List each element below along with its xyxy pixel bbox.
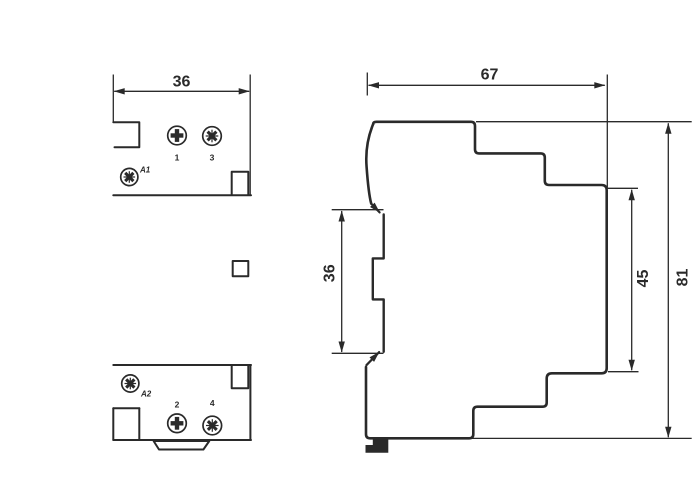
terminal-screw-2 — [168, 414, 187, 433]
front-upper-right-tab — [232, 172, 249, 195]
coil-label-a2: A2 — [140, 390, 152, 399]
side-height-label: 81 — [675, 269, 692, 287]
front-bottom-left-notch — [113, 408, 139, 440]
terminal-screw-1 — [168, 126, 187, 145]
terminal-label-4: 4 — [210, 398, 215, 408]
front-width-label: 36 — [173, 74, 191, 91]
side-step-dimension: 45 — [608, 188, 652, 371]
front-rail-clip — [154, 441, 210, 450]
terminal-label-3: 3 — [210, 153, 215, 163]
side-step-label: 45 — [635, 270, 652, 288]
terminal-label-2: 2 — [175, 400, 180, 410]
side-rail-dimension: 36 — [322, 210, 384, 354]
rail-notch-pointer-bottom — [366, 352, 379, 365]
terminal-screw-3 — [203, 127, 222, 146]
din-rail-channel — [373, 215, 384, 352]
side-height-dimension: 81 — [471, 122, 692, 439]
side-housing-outline — [366, 122, 607, 439]
side-depth-dimension: 67 — [367, 67, 607, 190]
front-top-left-notch — [113, 122, 139, 147]
din-rail-clip-foot — [366, 439, 389, 453]
coil-screw-a2 — [122, 375, 139, 392]
side-depth-label: 67 — [481, 67, 499, 84]
rail-notch-pointer-top — [371, 204, 379, 213]
side-view: 67 36 45 81 — [322, 67, 692, 453]
terminal-label-1: 1 — [175, 153, 180, 163]
front-lower-right-tab — [232, 365, 249, 388]
terminal-screw-4 — [203, 416, 222, 435]
coil-screw-a1 — [121, 168, 138, 185]
side-front-face-curve — [366, 124, 373, 204]
dimension-drawing: 36 1 3 A1 — [0, 0, 700, 500]
side-rail-label: 36 — [322, 264, 339, 282]
front-view: 36 1 3 A1 — [113, 74, 251, 450]
coil-label-a1: A1 — [139, 166, 151, 175]
front-middle-window — [233, 261, 249, 276]
